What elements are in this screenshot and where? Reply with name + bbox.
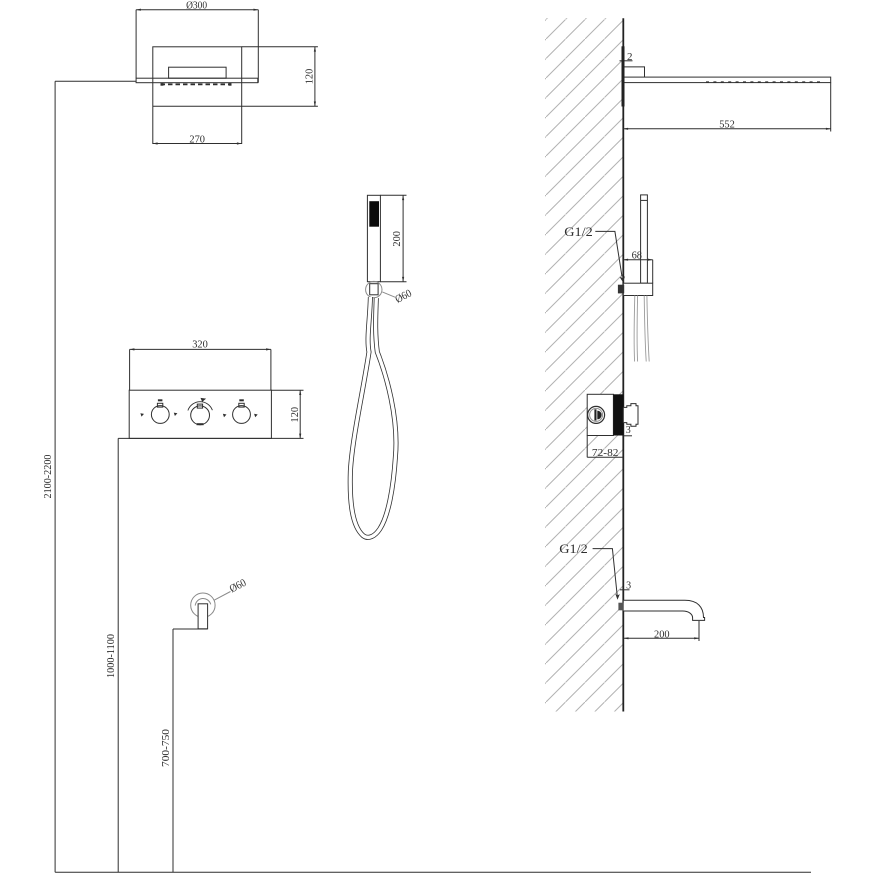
svg-text:Ø300: Ø300 [186, 0, 207, 12]
svg-text:68: 68 [632, 249, 643, 261]
svg-text:320: 320 [192, 339, 208, 351]
svg-text:700-750: 700-750 [160, 728, 172, 767]
svg-text:552: 552 [719, 118, 735, 130]
svg-text:120: 120 [289, 406, 301, 422]
svg-text:3: 3 [626, 425, 631, 436]
svg-text:2: 2 [627, 51, 633, 63]
svg-text:200: 200 [654, 629, 670, 641]
svg-text:2100-2200: 2100-2200 [42, 454, 54, 498]
svg-text:G1/2: G1/2 [564, 225, 593, 239]
svg-text:72-82: 72-82 [592, 447, 619, 459]
svg-text:270: 270 [189, 133, 205, 145]
svg-text:120: 120 [304, 68, 316, 84]
svg-text:200: 200 [391, 231, 403, 247]
svg-text:G1/2: G1/2 [559, 542, 588, 556]
svg-text:1000-1100: 1000-1100 [105, 634, 117, 678]
